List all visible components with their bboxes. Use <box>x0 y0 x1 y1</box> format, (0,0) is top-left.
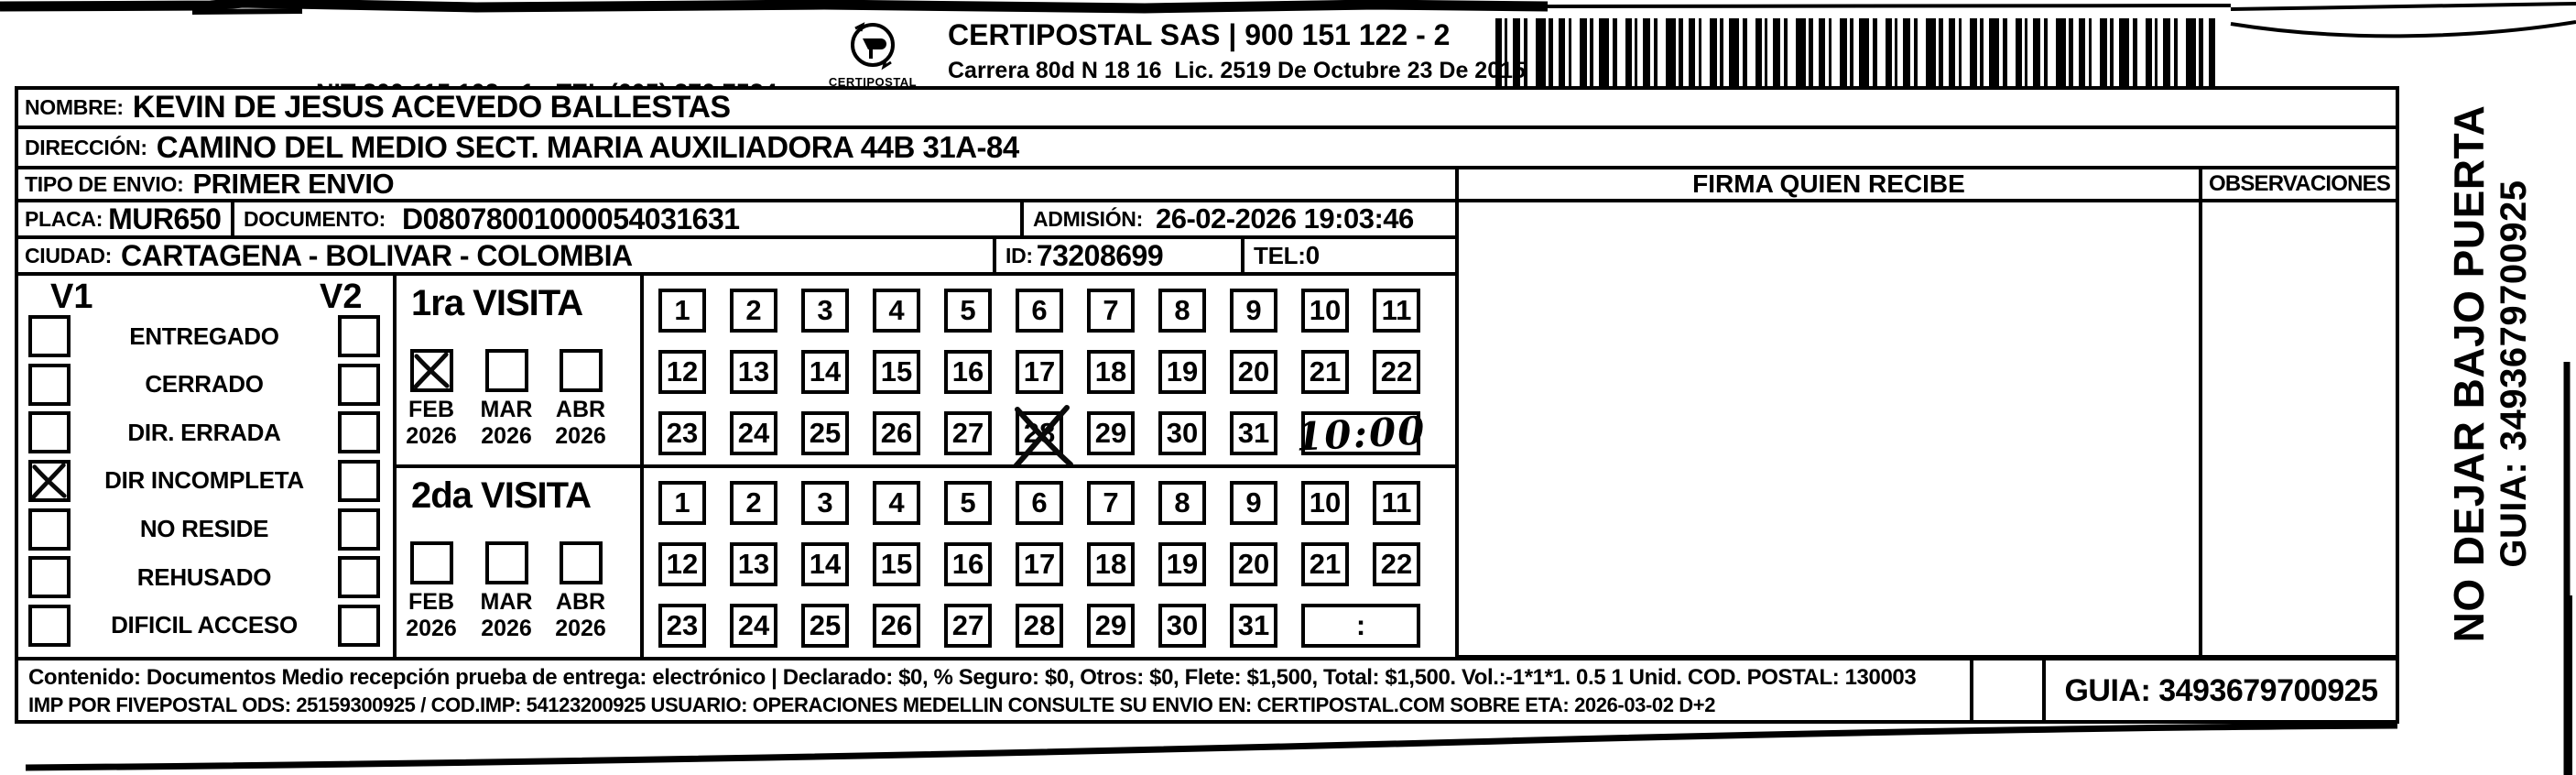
status-option-label: DIR. ERRADA <box>71 419 338 447</box>
status-option-label: REHUSADO <box>71 563 338 592</box>
day-cell-4-1ra-visita: 4 <box>873 289 920 333</box>
direccion-label: DIRECCIÓN: <box>25 136 147 160</box>
day-cell-26-2da-visita: 26 <box>873 604 920 648</box>
status-option-label: NO RESIDE <box>71 515 338 543</box>
barcode-bar <box>1524 18 1527 86</box>
barcode-bar <box>1613 18 1617 86</box>
barcode-bar <box>1559 18 1565 86</box>
footer-content-cell: Contenido: Documentos Medio recepción pr… <box>15 658 1973 724</box>
admision-cell: ADMISIÓN: 26-02-2026 19:03:46 <box>1021 200 1458 238</box>
barcode-bar <box>2163 18 2170 86</box>
barcode-bar <box>2119 18 2129 86</box>
month-label-mar: MAR2026 <box>474 397 538 450</box>
status-row-dir-errada: DIR. ERRADA <box>28 410 380 454</box>
status-option-label: ENTREGADO <box>71 322 338 351</box>
month-label-mar: MAR2026 <box>474 589 538 642</box>
guia-number: GUIA: 3493679700925 <box>2064 673 2377 709</box>
day-cell-20-2da-visita: 20 <box>1230 542 1277 586</box>
visit-1-months-box: 1ra VISITA FEB2026MAR2026ABR2026 <box>394 273 643 467</box>
barcode-bar <box>1939 18 1943 86</box>
barcode-bar <box>2069 18 2073 86</box>
barcode-bar <box>1796 18 1806 86</box>
barcode-bar <box>1903 18 1910 86</box>
barcode-bar <box>1989 18 1999 86</box>
observaciones-body-cell <box>2200 200 2399 658</box>
side-note-guia: GUIA: 3493679700925 <box>2494 180 2535 567</box>
barcode-bar <box>2033 18 2040 86</box>
barcode-bar <box>1635 18 1637 86</box>
day-cell-18-1ra-visita: 18 <box>1087 350 1135 394</box>
placa-label: PLACA: <box>25 207 103 232</box>
day-cell-22-1ra-visita: 22 <box>1373 350 1420 394</box>
barcode-bar <box>1819 18 1825 86</box>
visit-2-title: 2da VISITA <box>411 475 591 517</box>
barcode-bar <box>1590 18 1593 86</box>
footer-spacer-cell <box>1971 658 2045 724</box>
status-row-entregado: ENTREGADO <box>28 314 380 358</box>
nombre-row: NOMBRE: KEVIN DE JESUS ACEVEDO BALLESTAS <box>15 86 2399 128</box>
admision-label: ADMISIÓN: <box>1033 207 1143 232</box>
barcode-bar <box>1505 18 1507 86</box>
day-cell-28-2da-visita: 28 <box>1016 604 1063 648</box>
tel-label: TEL: <box>1254 242 1306 270</box>
day-cell-19-2da-visita: 19 <box>1158 542 1206 586</box>
barcode <box>1495 18 2225 86</box>
month-checkbox-1ra-visita-mar <box>485 349 528 392</box>
v1-checkbox-dir-incompleta <box>28 460 71 502</box>
carrier-info: CERTIPOSTAL SAS | 900 151 122 - 2 Carrer… <box>948 18 1526 84</box>
status-option-label: DIR INCOMPLETA <box>71 466 338 495</box>
time-box-2da-visita: : <box>1301 604 1420 648</box>
barcode-bar <box>1914 18 1918 86</box>
placa-value: MUR650 <box>108 202 221 236</box>
day-cell-9-1ra-visita: 9 <box>1230 289 1277 333</box>
day-cell-7-1ra-visita: 7 <box>1087 289 1135 333</box>
barcode-bar <box>1536 18 1546 86</box>
day-cell-17-1ra-visita: 17 <box>1016 350 1063 394</box>
time-box-1ra-visita: 10:00 <box>1301 411 1420 455</box>
barcode-bar <box>2056 18 2066 86</box>
month-label-feb: FEB2026 <box>399 589 463 642</box>
day-cell-8-2da-visita: 8 <box>1158 481 1206 525</box>
day-cell-27-2da-visita: 27 <box>944 604 992 648</box>
v2-column-header: V2 <box>320 278 362 317</box>
tel-value: 0 <box>1306 241 1320 270</box>
ciudad-cell: CIUDAD: CARTAGENA - BOLIVAR - COLOMBIA <box>15 236 995 275</box>
firma-body-cell <box>1456 200 2201 658</box>
v2-checkbox-rehusado <box>338 556 380 598</box>
firma-header-cell: FIRMA QUIEN RECIBE <box>1456 167 2201 202</box>
barcode-bar <box>2174 18 2178 86</box>
barcode-bar <box>1873 18 1877 86</box>
barcode-bar <box>1689 18 1695 86</box>
placa-cell: PLACA: MUR650 <box>15 200 234 238</box>
barcode-bar <box>1886 18 1892 86</box>
day-cell-14-1ra-visita: 14 <box>801 350 849 394</box>
day-cell-17-2da-visita: 17 <box>1016 542 1063 586</box>
day-cell-14-2da-visita: 14 <box>801 542 849 586</box>
v2-checkbox-dir-errada <box>338 411 380 453</box>
day-cell-27-1ra-visita: 27 <box>944 411 992 455</box>
day-cell-2-2da-visita: 2 <box>730 481 777 525</box>
footer-line2: IMP POR FIVEPOSTAL ODS: 25159300925 / CO… <box>28 693 1715 717</box>
day-cell-25-2da-visita: 25 <box>801 604 849 648</box>
status-row-rehusado: REHUSADO <box>28 555 380 599</box>
v1-checkbox-no-reside <box>28 508 71 551</box>
documento-value: D08078001000054031631 <box>402 202 740 236</box>
day-cell-31-2da-visita: 31 <box>1230 604 1277 648</box>
barcode-bar <box>1720 18 1723 86</box>
id-cell: ID: 73208699 <box>994 236 1244 275</box>
tipo-envio-label: TIPO DE ENVIO: <box>25 172 183 197</box>
day-cell-12-2da-visita: 12 <box>658 542 706 586</box>
day-cell-30-2da-visita: 30 <box>1158 604 1206 648</box>
id-value: 73208699 <box>1037 239 1163 273</box>
barcode-bar <box>1784 18 1788 86</box>
barcode-bar <box>2025 18 2027 86</box>
v1-checkbox-dir-errada <box>28 411 71 453</box>
visit-2-day-grid: 1234567891011121314151617181920212223242… <box>641 465 1458 660</box>
barcode-bar <box>1926 18 1936 86</box>
barcode-bar <box>2199 18 2203 86</box>
day-cell-16-1ra-visita: 16 <box>944 350 992 394</box>
month-checkbox-2da-visita-mar <box>485 541 528 584</box>
day-cell-3-1ra-visita: 3 <box>801 289 849 333</box>
day-cell-29-1ra-visita: 29 <box>1087 411 1135 455</box>
day-cell-29-2da-visita: 29 <box>1087 604 1135 648</box>
admision-value: 26-02-2026 19:03:46 <box>1156 202 1414 235</box>
barcode-bar <box>1895 18 1897 86</box>
visit-1-title: 1ra VISITA <box>411 283 582 324</box>
barcode-bar <box>1729 18 1739 86</box>
status-row-no-reside: NO RESIDE <box>28 508 380 551</box>
status-row-cerrado: CERRADO <box>28 363 380 407</box>
nombre-value: KEVIN DE JESUS ACEVEDO BALLESTAS <box>133 90 731 126</box>
barcode-bar <box>1580 18 1587 86</box>
carrier-name: CERTIPOSTAL SAS | 900 151 122 - 2 <box>948 18 1526 53</box>
barcode-bar <box>2146 18 2152 86</box>
id-label: ID: <box>1005 244 1033 268</box>
barcode-bar <box>1625 18 1632 86</box>
barcode-bar <box>2155 18 2158 86</box>
certipostal-logo-icon <box>846 20 899 73</box>
day-cell-28-1ra-visita: 28 <box>1016 411 1063 455</box>
barcode-bar <box>1949 18 1955 86</box>
v1-checkbox-rehusado <box>28 556 71 598</box>
carrier-address: Carrera 80d N 18 16 Lic. 2519 De Octubre… <box>948 58 1526 85</box>
tipo-envio-cell: TIPO DE ENVIO: PRIMER ENVIO <box>15 167 1458 202</box>
day-cell-13-2da-visita: 13 <box>730 542 777 586</box>
tel-cell: TEL: 0 <box>1242 236 1458 275</box>
day-cell-11-1ra-visita: 11 <box>1373 289 1420 333</box>
day-cell-31-1ra-visita: 31 <box>1230 411 1277 455</box>
day-cell-16-2da-visita: 16 <box>944 542 992 586</box>
day-cell-20-1ra-visita: 20 <box>1230 350 1277 394</box>
barcode-bar <box>1699 18 1701 86</box>
status-row-dificil-acceso: DIFICIL ACCESO <box>28 604 380 648</box>
month-checkbox-1ra-visita-feb <box>410 349 453 392</box>
tipo-envio-value: PRIMER ENVIO <box>192 168 394 201</box>
barcode-bar <box>1679 18 1683 86</box>
day-cell-10-1ra-visita: 10 <box>1301 289 1349 333</box>
barcode-bar <box>2079 18 2085 86</box>
barcode-bar <box>1829 18 1831 86</box>
day-cell-24-1ra-visita: 24 <box>730 411 777 455</box>
v1-checkbox-cerrado <box>28 364 71 406</box>
v1-checkbox-dificil-acceso <box>28 605 71 647</box>
direccion-row: DIRECCIÓN: CAMINO DEL MEDIO SECT. MARIA … <box>15 126 2399 169</box>
day-cell-30-1ra-visita: 30 <box>1158 411 1206 455</box>
day-cell-1-1ra-visita: 1 <box>658 289 706 333</box>
visit-2-months-box: 2da VISITA FEB2026MAR2026ABR2026 <box>394 465 643 660</box>
barcode-bar <box>1980 18 1984 86</box>
barcode-bar <box>2044 18 2048 86</box>
barcode-bar <box>1970 18 1977 86</box>
barcode-bar <box>1495 18 1502 86</box>
day-cell-23-1ra-visita: 23 <box>658 411 706 455</box>
barcode-bar <box>1773 18 1780 86</box>
barcode-bar <box>2133 18 2137 86</box>
certipostal-logo: CERTIPOSTAL <box>827 20 918 95</box>
day-cell-12-1ra-visita: 12 <box>658 350 706 394</box>
barcode-bar <box>1743 18 1747 86</box>
month-label-abr: ABR2026 <box>549 589 613 642</box>
day-cell-15-2da-visita: 15 <box>873 542 920 586</box>
month-checkbox-1ra-visita-abr <box>560 349 603 392</box>
barcode-bar <box>2100 18 2107 86</box>
side-note-warning: NO DEJAR BAJO PUERTA <box>2444 104 2494 642</box>
day-cell-23-2da-visita: 23 <box>658 604 706 648</box>
observaciones-header: OBSERVACIONES <box>2209 171 2390 197</box>
barcode-bar <box>1859 18 1869 86</box>
side-note: NO DEJAR BAJO PUERTA GUIA: 3493679700925 <box>2401 87 2576 660</box>
barcode-bar <box>2209 18 2215 86</box>
firma-header: FIRMA QUIEN RECIBE <box>1692 169 1965 199</box>
day-cell-6-1ra-visita: 6 <box>1016 289 1063 333</box>
barcode-bar <box>2089 18 2092 86</box>
ciudad-value: CARTAGENA - BOLIVAR - COLOMBIA <box>121 239 633 273</box>
day-cell-26-1ra-visita: 26 <box>873 411 920 455</box>
barcode-bar <box>1850 18 1853 86</box>
status-row-dir-incompleta: DIR INCOMPLETA <box>28 459 380 503</box>
status-option-label: DIFICIL ACCESO <box>71 611 338 639</box>
day-cell-15-1ra-visita: 15 <box>873 350 920 394</box>
day-cell-24-2da-visita: 24 <box>730 604 777 648</box>
day-cell-22-2da-visita: 22 <box>1373 542 1420 586</box>
v2-checkbox-cerrado <box>338 364 380 406</box>
barcode-bar <box>1840 18 1847 86</box>
barcode-bar <box>1809 18 1813 86</box>
barcode-bar <box>1710 18 1717 86</box>
v2-checkbox-entregado <box>338 315 380 357</box>
day-cell-21-2da-visita: 21 <box>1301 542 1349 586</box>
barcode-bar <box>2110 18 2114 86</box>
barcode-bar <box>1643 18 1650 86</box>
day-cell-13-1ra-visita: 13 <box>730 350 777 394</box>
handwritten-time: 10:00 <box>1295 408 1428 459</box>
day-cell-18-2da-visita: 18 <box>1087 542 1135 586</box>
barcode-bar <box>1549 18 1553 86</box>
delivery-slip: TRANSITO DEL ATLANTICO NIT 800 115 102 -… <box>0 0 2576 775</box>
barcode-bar <box>1654 18 1658 86</box>
month-label-abr: ABR2026 <box>549 397 613 450</box>
day-cell-3-2da-visita: 3 <box>801 481 849 525</box>
day-cell-5-1ra-visita: 5 <box>944 289 992 333</box>
day-cell-6-2da-visita: 6 <box>1016 481 1063 525</box>
barcode-bar <box>2016 18 2022 86</box>
v2-checkbox-dificil-acceso <box>338 605 380 647</box>
day-cell-7-2da-visita: 7 <box>1087 481 1135 525</box>
barcode-bar <box>1959 18 1962 86</box>
day-cell-5-2da-visita: 5 <box>944 481 992 525</box>
v2-checkbox-dir-incompleta <box>338 460 380 502</box>
visit-1-day-grid: 1234567891011121314151617181920212223242… <box>641 273 1458 467</box>
month-checkbox-2da-visita-feb <box>410 541 453 584</box>
barcode-bar <box>1513 18 1520 86</box>
day-cell-11-2da-visita: 11 <box>1373 481 1420 525</box>
status-option-label: CERRADO <box>71 370 338 398</box>
barcode-bar <box>1569 18 1571 86</box>
ciudad-label: CIUDAD: <box>25 244 112 268</box>
documento-cell: DOCUMENTO: D08078001000054031631 <box>232 200 1023 238</box>
month-label-feb: FEB2026 <box>399 397 463 450</box>
documento-label: DOCUMENTO: <box>244 207 386 232</box>
barcode-bar <box>2003 18 2007 86</box>
nombre-label: NOMBRE: <box>25 95 124 120</box>
day-cell-1-2da-visita: 1 <box>658 481 706 525</box>
day-cell-2-1ra-visita: 2 <box>730 289 777 333</box>
barcode-bar <box>1666 18 1676 86</box>
month-checkbox-2da-visita-abr <box>560 541 603 584</box>
status-rows: ENTREGADOCERRADODIR. ERRADA DIR INCOMPLE… <box>28 314 380 648</box>
direccion-value: CAMINO DEL MEDIO SECT. MARIA AUXILIADORA… <box>157 130 1019 165</box>
v2-checkbox-no-reside <box>338 508 380 551</box>
day-cell-8-1ra-visita: 8 <box>1158 289 1206 333</box>
v1-column-header: V1 <box>50 278 92 317</box>
barcode-bar <box>1755 18 1762 86</box>
v1-checkbox-entregado <box>28 315 71 357</box>
day-cell-9-2da-visita: 9 <box>1230 481 1277 525</box>
day-cell-10-2da-visita: 10 <box>1301 481 1349 525</box>
day-cell-25-1ra-visita: 25 <box>801 411 849 455</box>
guia-box: GUIA: 3493679700925 <box>2043 658 2399 724</box>
day-cell-19-1ra-visita: 19 <box>1158 350 1206 394</box>
day-cell-4-2da-visita: 4 <box>873 481 920 525</box>
observaciones-header-cell: OBSERVACIONES <box>2200 167 2399 202</box>
status-box: V1 V2 ENTREGADOCERRADODIR. ERRADA DIR IN… <box>15 273 396 660</box>
day-cell-21-1ra-visita: 21 <box>1301 350 1349 394</box>
barcode-bar <box>1599 18 1609 86</box>
barcode-bar <box>2186 18 2196 86</box>
barcode-bar <box>1765 18 1767 86</box>
footer-line1: Contenido: Documentos Medio recepción pr… <box>28 665 1916 691</box>
